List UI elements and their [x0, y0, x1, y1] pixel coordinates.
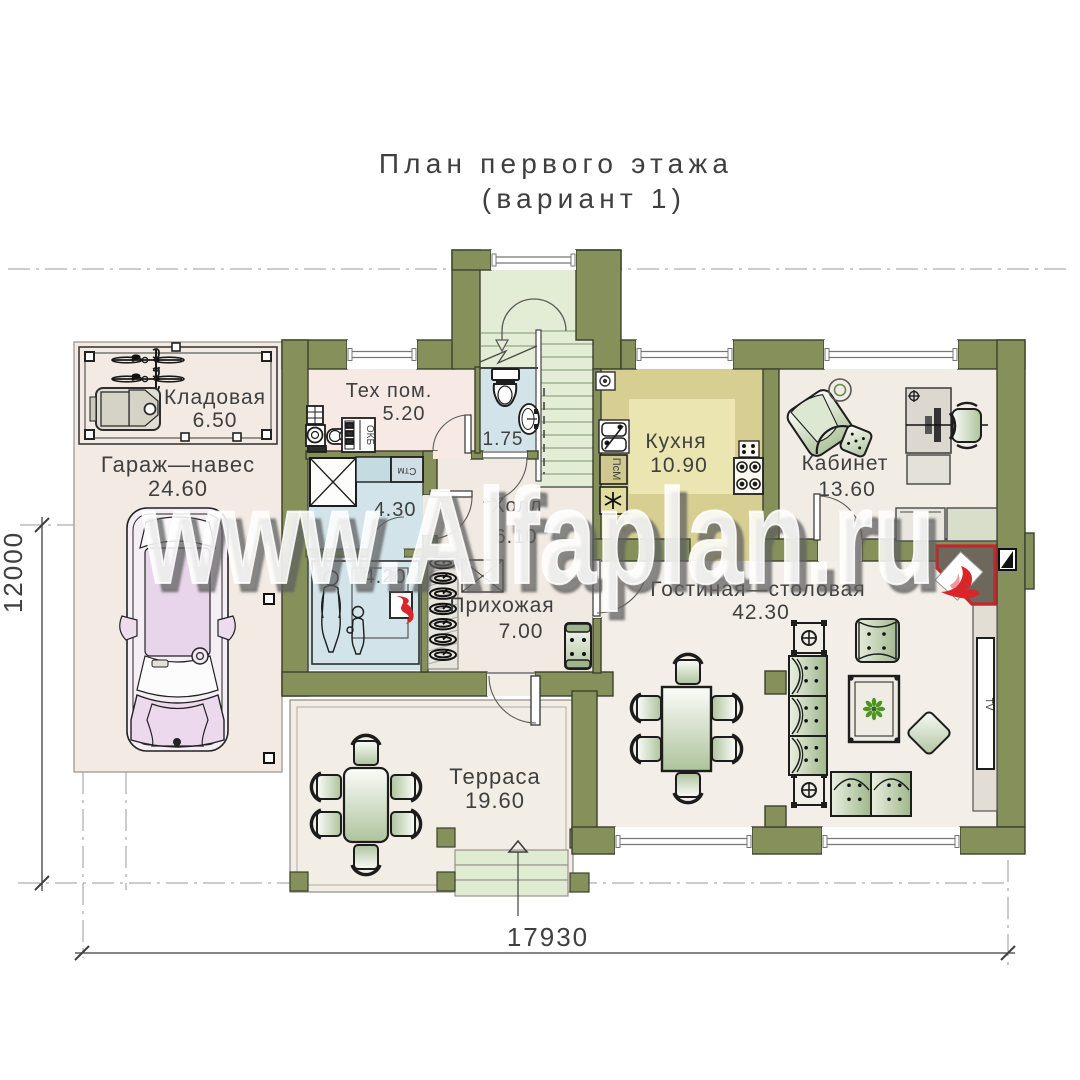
svg-text:Кладовая: Кладовая: [164, 386, 266, 409]
svg-text:TV: TV: [983, 698, 994, 711]
svg-text:7.00: 7.00: [499, 620, 544, 643]
svg-text:ОКБ: ОКБ: [364, 425, 375, 446]
svg-text:(вариант 1): (вариант 1): [482, 183, 686, 214]
svg-text:17930: 17930: [507, 922, 589, 952]
svg-text:1.75: 1.75: [483, 429, 524, 450]
svg-text:6.50: 6.50: [193, 409, 238, 432]
svg-text:5.20: 5.20: [383, 403, 426, 425]
svg-text:Терраса: Терраса: [449, 764, 540, 789]
svg-text:Кухня: Кухня: [645, 430, 706, 453]
svg-text:Тех пом.: Тех пом.: [346, 380, 433, 402]
svg-text:www.Alfaplan.ru: www.Alfaplan.ru: [141, 461, 935, 612]
svg-text:19.60: 19.60: [465, 788, 525, 813]
svg-text:План первого этажа: План первого этажа: [379, 148, 733, 179]
svg-text:12000: 12000: [0, 531, 28, 613]
